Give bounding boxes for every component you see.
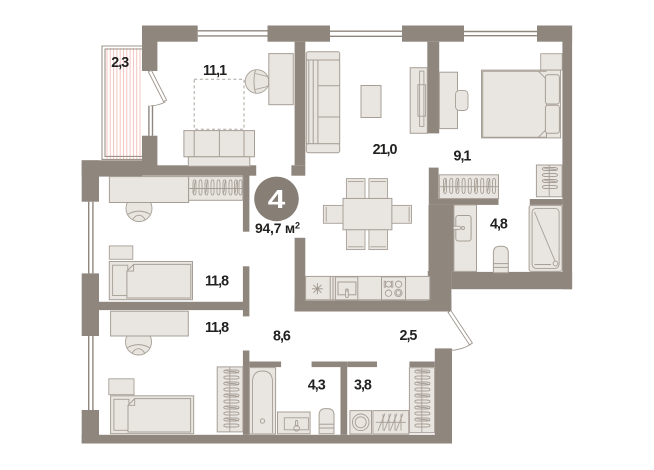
svg-text:21,0: 21,0 bbox=[373, 142, 398, 158]
svg-text:11,8: 11,8 bbox=[205, 273, 229, 289]
svg-text:3,8: 3,8 bbox=[354, 377, 372, 393]
svg-text:9,1: 9,1 bbox=[454, 148, 472, 164]
svg-text:2,5: 2,5 bbox=[400, 328, 418, 344]
svg-text:4,3: 4,3 bbox=[308, 377, 326, 393]
svg-text:11,8: 11,8 bbox=[205, 320, 229, 336]
svg-text:11,1: 11,1 bbox=[203, 63, 227, 79]
svg-text:94,7 м2: 94,7 м2 bbox=[255, 220, 300, 236]
svg-text:4,8: 4,8 bbox=[490, 217, 508, 233]
svg-text:2,3: 2,3 bbox=[111, 55, 129, 71]
svg-text:8,6: 8,6 bbox=[273, 328, 291, 344]
svg-text:4: 4 bbox=[268, 186, 287, 214]
